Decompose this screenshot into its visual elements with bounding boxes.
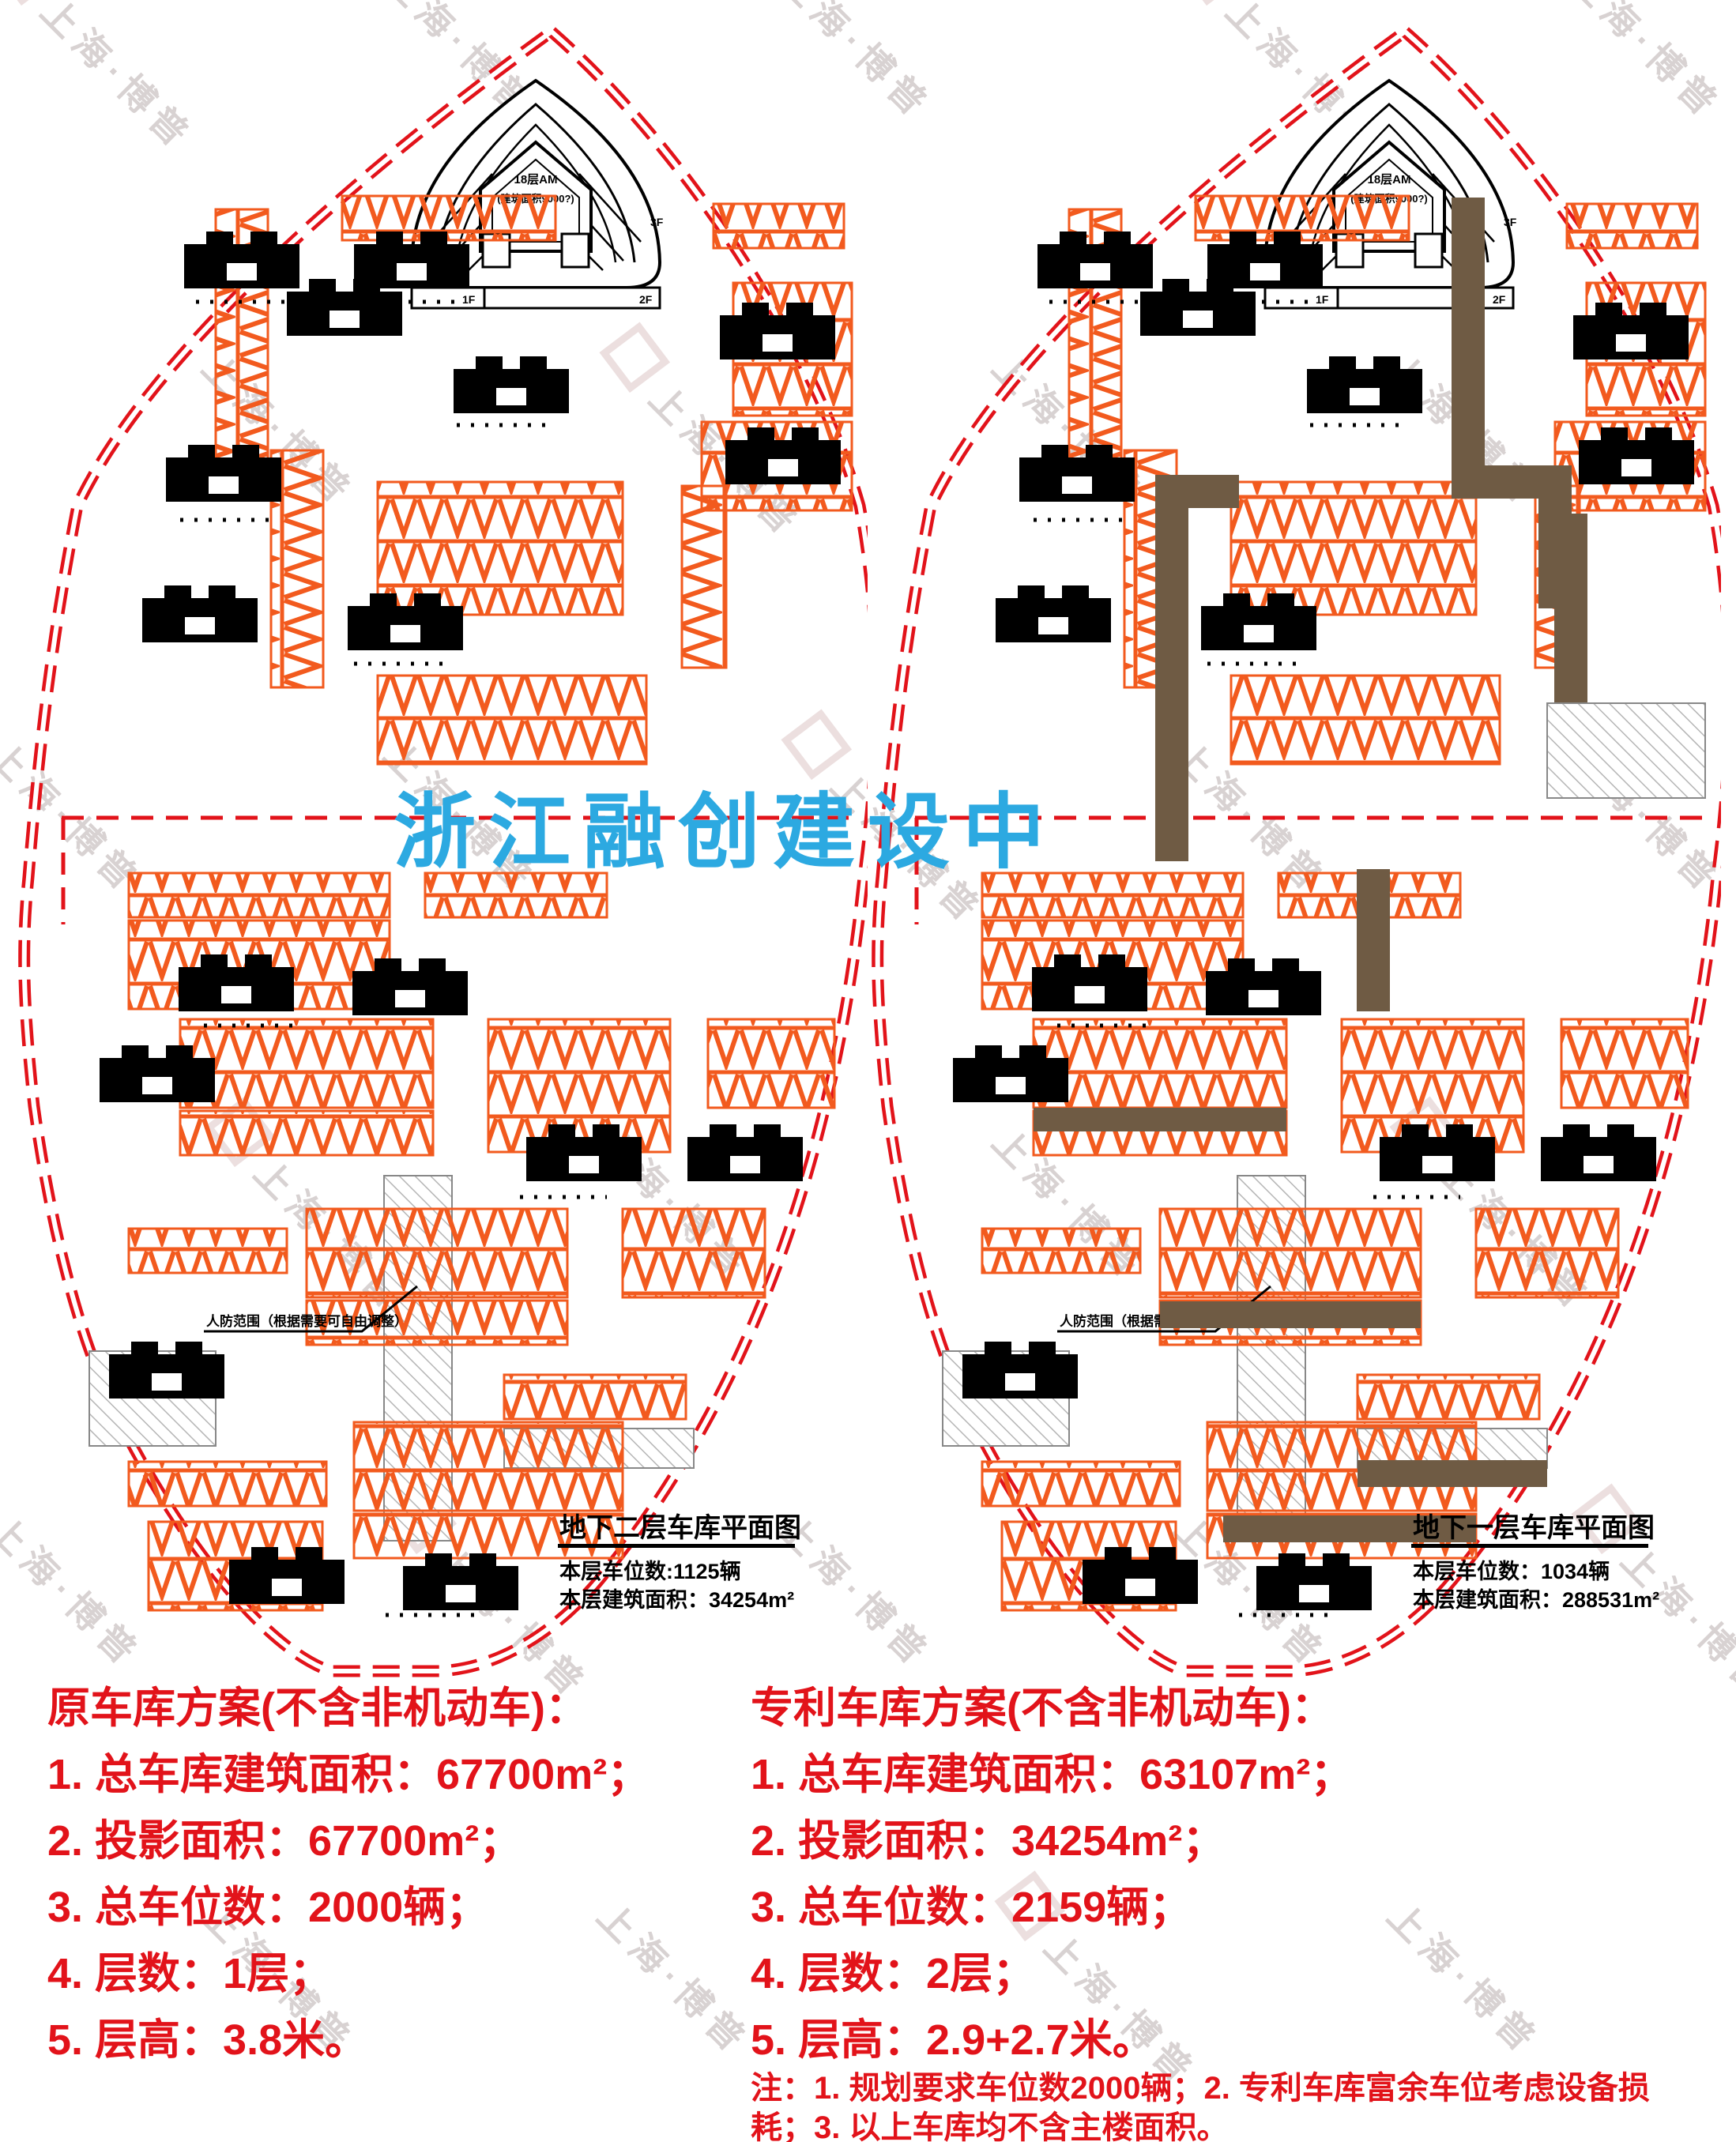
plan-left-caption: 地下二层车库平面图 本层车位数:1125辆 本层建筑面积：34254m²: [558, 1513, 801, 1612]
scheme-item: 2. 投影面积：34254m²；: [751, 1808, 1353, 1874]
scheme-item: 1. 总车库建筑面积：63107m²；: [751, 1741, 1353, 1808]
original-scheme-heading: 原车库方案(不含非机动车)：: [47, 1675, 650, 1741]
plan-title: 地下一层车库平面图: [1413, 1513, 1655, 1543]
plan-stat-spaces: 本层车位数:1125辆: [559, 1559, 741, 1583]
diagonal-watermark: 上海·博普: [1377, 1890, 1553, 2066]
footnote-line: 耗；3. 以上车库均不含主楼面积。: [751, 2108, 1650, 2142]
scheme-item: 3. 总车位数：2159辆；: [751, 1874, 1353, 1941]
scheme-item: 1. 总车库建筑面积：67700m²；: [47, 1741, 650, 1808]
scheme-item: 5. 层高：2.9+2.7米。: [751, 2007, 1353, 2073]
footnote: 注：1. 规划要求车位数2000辆；2. 专利车库富余车位考虑设备损 耗；3. …: [751, 2069, 1650, 2142]
plan-right-caption: 地下一层车库平面图 本层车位数：1034辆 本层建筑面积：288531m²: [1411, 1513, 1659, 1612]
scheme-item: 2. 投影面积：67700m²；: [47, 1808, 650, 1874]
patent-scheme-heading: 专利车库方案(不含非机动车)：: [751, 1675, 1353, 1741]
plan-stat-area: 本层建筑面积：288531m²: [1413, 1587, 1659, 1612]
patent-scheme-block: 专利车库方案(不含非机动车)： 1. 总车库建筑面积：63107m²； 2. 投…: [751, 1675, 1353, 2073]
plan-stat-area: 本层建筑面积：34254m²: [559, 1587, 794, 1612]
scheme-item: 3. 总车位数：2000辆；: [47, 1874, 650, 1941]
plan-stat-spaces: 本层车位数：1034辆: [1413, 1559, 1610, 1583]
scheme-item: 5. 层高：3.8米。: [47, 2007, 650, 2073]
scheme-item: 4. 层数：2层；: [751, 1941, 1353, 2007]
status-watermark: 浙江融创建设中: [394, 765, 1057, 884]
original-scheme-block: 原车库方案(不含非机动车)： 1. 总车库建筑面积：67700m²； 2. 投影…: [47, 1675, 650, 2073]
hatched-ramp: [1547, 703, 1705, 798]
plan-title: 地下二层车库平面图: [559, 1513, 801, 1543]
footnote-line: 注：1. 规划要求车位数2000辆；2. 专利车库富余车位考虑设备损: [751, 2069, 1650, 2108]
bopu-logo-icon: [1176, 0, 1247, 6]
drawing-canvas: 上海·博普上海·博普上海·博普上海·博普上海·博普上海·博普上海·博普上海·博普…: [0, 0, 1736, 2142]
scheme-item: 4. 层数：1层；: [47, 1941, 650, 2007]
bopu-logo-icon: [0, 0, 62, 6]
